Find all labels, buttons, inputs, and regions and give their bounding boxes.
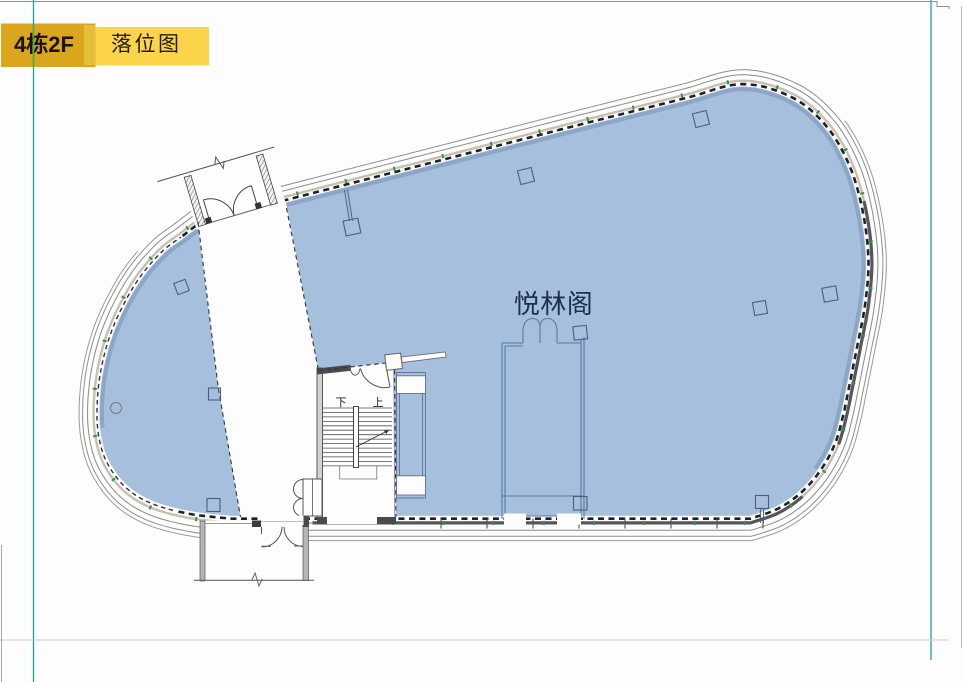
svg-text:悦林阁: 悦林阁 — [514, 290, 594, 319]
svg-text:下: 下 — [336, 397, 347, 409]
svg-text:落位图: 落位图 — [111, 33, 182, 56]
svg-text:4栋2F: 4栋2F — [14, 32, 74, 57]
svg-text:上: 上 — [373, 396, 384, 409]
